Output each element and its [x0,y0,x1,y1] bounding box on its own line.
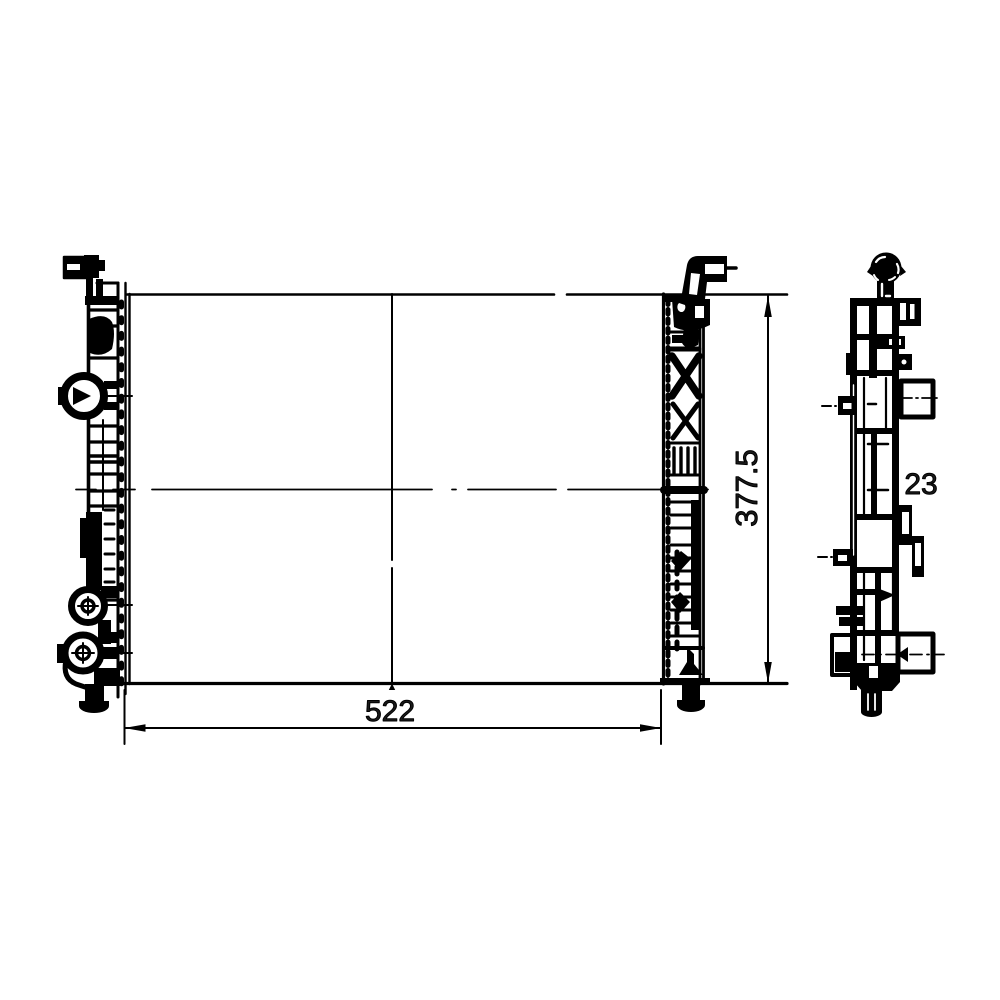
svg-text:23: 23 [904,468,937,501]
svg-text:377.5: 377.5 [729,449,764,527]
svg-text:522: 522 [365,695,415,728]
